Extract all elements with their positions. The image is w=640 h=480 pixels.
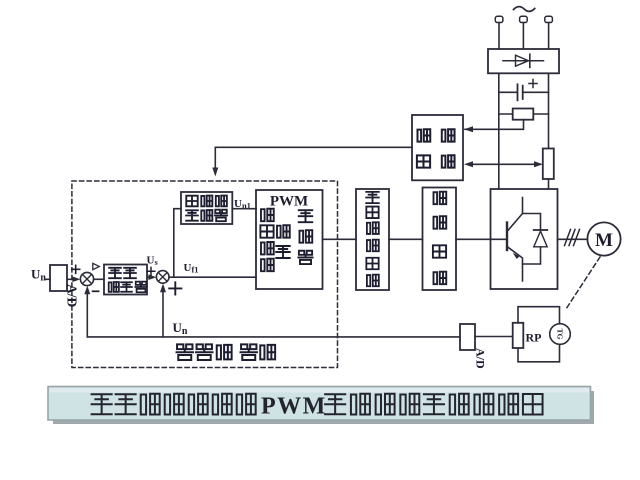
svg-text:TG: TG	[555, 329, 564, 340]
svg-text:Un: Un	[31, 267, 46, 284]
svg-text:A/D: A/D	[65, 284, 80, 308]
svg-text:PWM: PWM	[270, 194, 308, 210]
svg-text:PWM: PWM	[261, 394, 327, 420]
svg-text:M: M	[595, 230, 613, 251]
svg-text:RP: RP	[526, 331, 542, 345]
svg-text:Un: Un	[173, 320, 188, 337]
svg-text:A/D: A/D	[474, 348, 488, 369]
svg-text:Uf1: Uf1	[184, 262, 199, 275]
svg-text:Us: Us	[147, 255, 159, 268]
